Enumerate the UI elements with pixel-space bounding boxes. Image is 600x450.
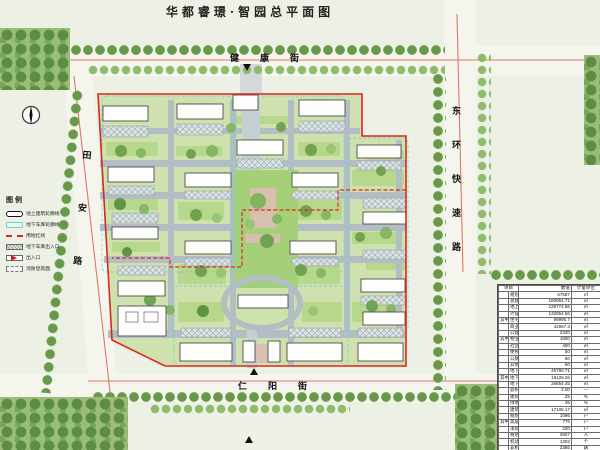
table-row: 计容总建筑面积 132854.56 ㎡ [499, 311, 600, 317]
table-cell-group: 其中 [499, 375, 509, 381]
table-cell-label: 容积率 [509, 388, 519, 394]
legend-item: 地下车库轮廓线 [6, 219, 78, 230]
table-cell-label: 便民店建筑面积 [509, 349, 519, 355]
legend-title: 图例 [6, 195, 78, 205]
table-cell-label: 地上总建筑面积 [509, 305, 519, 311]
legend-item-label: 出入口 [26, 254, 40, 261]
table-cell-label: 建筑占地面积 [509, 407, 519, 413]
page-title: 华都睿璟·智园总平面图 [130, 3, 370, 20]
table-cell-label: 地下车库建筑面积 [509, 375, 519, 381]
table-cell-label: 公厕建筑面积 [509, 356, 519, 362]
table-cell-group [499, 445, 509, 450]
table-cell-label: 计容总建筑面积 [509, 311, 519, 317]
legend-item: 地上建筑轮廓线 [6, 208, 78, 219]
table-cell-label: 社区管理用房面积 [509, 343, 519, 349]
redline-icon [6, 235, 23, 237]
table-cell-label: 建筑密度 [509, 394, 519, 400]
table-cell-label: 地下总建筑面积 [509, 369, 519, 375]
entrance-icon [6, 255, 23, 261]
garage-outline-icon [6, 222, 23, 228]
table-cell-label: 物业管理用房面积 [509, 337, 519, 343]
legend-item-label: 用地红线 [26, 232, 45, 239]
fire-access-icon [6, 266, 23, 272]
street-label-donghuan: 东环快速路 [450, 106, 463, 276]
table-cell-label: 总建筑面积 [509, 298, 519, 304]
legend: 图例 地上建筑轮廓线 地下车库轮廓线 用地红线 地下车库出入口 出入口 消防登高… [6, 195, 78, 274]
legend-item-label: 地上建筑轮廓线 [26, 210, 60, 217]
street-label-jiankang: 健康街 [230, 51, 320, 64]
tree-cluster-bottom-right [455, 384, 500, 450]
table-cell-group: 其中 [499, 420, 509, 426]
legend-item-label: 地下车库轮廓线 [26, 221, 60, 228]
table-cell-label: 其他配套建筑面积 [509, 362, 519, 368]
table-cell-label: 地下人防建筑面积 [509, 381, 519, 387]
legend-item-label: 消防登高面 [26, 265, 50, 272]
table-body: 规划净用地面积 67587 ㎡ 总建筑面积 180954.71 ㎡ 地上总建筑面… [499, 292, 600, 450]
table-cell-label: 规划净用地面积 [509, 292, 519, 298]
tree-row-above-table [490, 268, 600, 283]
table-cell-label: 绿地率 [509, 401, 519, 407]
table-cell-unit: 辆 [571, 445, 600, 450]
building-outline-icon [6, 211, 23, 217]
tree-row-top-south [88, 64, 445, 77]
site-plan-drawing: 华都睿璟·智园总平面图 健康街 仁阳街 东环快速路 田安路 北 图例 地上建筑轮… [0, 0, 600, 450]
entrance-arrow-bottom [250, 368, 258, 375]
table-cell-group: 其中 [499, 317, 509, 323]
tree-cluster-bottom-left [0, 397, 128, 450]
table-cell-label: 公建配套建筑面积 [509, 330, 519, 336]
indicator-table: 项目 数值 计量单位 规划净用地面积 67587 ㎡ 总建筑面积 180954.… [497, 284, 600, 450]
table-cell-label: 洋房户数 [509, 426, 519, 432]
garage-ramp-icon [6, 244, 23, 250]
table-cell-value: 2366 [519, 445, 572, 450]
table-row: 总建筑面积 180954.71 ㎡ [499, 298, 600, 304]
entrance-arrow-top [243, 64, 251, 71]
table-cell-label: 非机动车停车位 [509, 445, 519, 450]
tree-row-expressway [477, 52, 491, 274]
tree-row-east-boundary [432, 72, 446, 390]
legend-item: 消防登高面 [6, 263, 78, 274]
compass-icon [20, 104, 42, 126]
legend-item: 出入口 [6, 252, 78, 263]
table-cell-label: 商业建筑面积 [509, 324, 519, 330]
tree-row-bottom-south [150, 403, 350, 415]
table-cell-label: 住宅建筑面积 [509, 317, 519, 323]
tree-cluster-east-edge [584, 55, 600, 165]
legend-item-label: 地下车库出入口 [26, 243, 60, 250]
street-label-renyang: 仁阳街 [238, 379, 328, 392]
table-cell-label: 规划居住人数 [509, 432, 519, 438]
table-cell-label: 机动车停车位 [509, 439, 519, 445]
table-row: 非机动车停车位 2366 辆 [499, 445, 600, 450]
table-row: 地上总建筑面积 129774.56 ㎡ [499, 305, 600, 311]
entrance-arrow-south [245, 436, 253, 443]
table-cell-label: 高层户数 [509, 420, 519, 426]
table-cell-group: 其中 [499, 337, 509, 343]
table-cell-label: 规划总户数 [509, 413, 519, 419]
tree-cluster-top-left [0, 28, 70, 90]
north-arrow: 北 [20, 104, 46, 117]
legend-item: 用地红线 [6, 230, 78, 241]
legend-item: 地下车库出入口 [6, 241, 78, 252]
